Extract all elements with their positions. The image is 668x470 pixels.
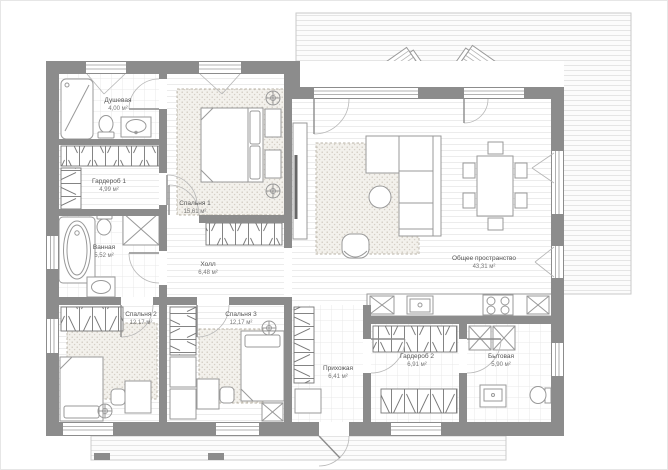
dining-chair [463,193,475,208]
window [47,236,58,269]
wardrobe-unit [294,307,314,383]
dining-chair [515,163,527,178]
window [391,423,441,435]
wall [363,316,552,324]
wall [59,297,121,305]
room-area-bathroom: 5,52 м² [94,253,113,259]
room-label-hall: Холл [200,261,216,268]
wall [159,109,167,173]
room-area-hall: 6,48 м² [198,270,217,276]
floor-plan-page: Душевая 4,00 м² Гардероб 1 4,99 м² Спаль… [0,0,668,470]
room-area-bedroom3: 12,17 м² [230,320,253,326]
desk-chair [220,387,234,403]
dining-chair [488,218,503,230]
kitchen-sink [407,296,433,314]
wall [59,139,159,145]
wall [153,297,197,305]
shower-cabin [123,213,159,245]
wall [199,215,292,223]
cooktop [483,295,513,315]
coffee-table [369,186,391,208]
wardrobe-unit [381,389,457,413]
wall [284,301,292,422]
tv-unit [293,123,307,239]
room-label-bedroom2: Спальня 2 [125,311,157,318]
toilet [530,387,551,404]
kitchen-counter [367,294,552,316]
pouf [342,234,369,258]
window [552,343,563,376]
wall [363,373,371,422]
room-label-bathroom: Ванная [93,244,116,251]
closet-cabinet [170,357,196,387]
wall [159,74,167,79]
room-label-utility: Бытовая [488,353,514,360]
shower-tray [61,79,93,139]
room-area-bedroom1: 15,61 м² [184,209,207,215]
ceiling-lamp-icon [266,91,280,105]
dining-chair [488,142,503,154]
room-area-shower: 4,00 м² [108,106,127,112]
wall [284,61,300,99]
room-label-bedroom1: Спальня 1 [179,200,211,207]
ceiling-lamp-icon [262,321,276,335]
window [47,319,58,353]
wall [459,324,467,339]
single-bed [60,357,103,421]
porch-post [94,453,110,460]
wardrobe-unit [61,168,81,209]
wardrobe-unit [61,307,123,331]
utility-sink [480,385,506,407]
wardrobe-unit [61,146,159,166]
room-area-bedroom2: 12,17 м² [130,320,153,326]
dining-chair [463,163,475,178]
nightstand [265,109,281,137]
built-in-appliance [527,296,549,314]
porch-deck [91,436,506,460]
room-label-shower: Душевая [104,97,132,104]
room-label-wardrobe2: Гардероб 2 [400,352,434,360]
room-area-common: 43,31 м² [473,264,496,270]
window [63,423,113,435]
bathtub [59,217,95,283]
room-area-entry: 6,41 м² [328,374,347,380]
shoe-cabinet [295,389,321,413]
wall [284,99,292,248]
wall [59,209,159,216]
wall [159,305,167,422]
dining-table [477,156,513,216]
wall [229,297,292,305]
dining-chair [515,193,527,208]
room-area-wardrobe1: 4,99 м² [99,187,118,193]
wall [349,422,564,436]
window [216,423,259,435]
ceiling-lamp-icon [98,404,112,418]
floor-plan-drawing: Душевая 4,00 м² Гардероб 1 4,99 м² Спаль… [1,1,668,470]
wardrobe-unit [206,223,282,245]
room-area-wardrobe2: 6,91 м² [407,362,426,368]
washing-machine [469,326,491,350]
washbasin [121,117,151,137]
room-label-wardrobe1: Гардероб 1 [92,177,126,185]
wall [46,61,300,74]
double-bed [201,108,263,182]
toilet [98,116,114,139]
wardrobe-unit [170,307,196,355]
floor-hatch-unit [262,403,283,421]
porch-post [208,453,224,460]
desk-chair [111,389,125,405]
dryer-machine [493,326,515,350]
tv-screen [295,155,298,219]
toilet [97,213,112,235]
nightstand [265,150,281,178]
ceiling-lamp-icon [266,184,280,198]
washbasin [87,277,115,297]
room-area-utility: 5,90 м² [491,362,510,368]
built-in-appliance [370,296,394,314]
single-bed [241,331,284,401]
porch [91,436,506,460]
wall [159,205,167,251]
closet-cabinet [170,389,196,419]
room-label-bedroom3: Спальня 3 [225,311,257,318]
room-label-entry: Прихожая [323,365,354,372]
room-label-common: Общее пространство [452,254,516,262]
wall [459,373,467,422]
